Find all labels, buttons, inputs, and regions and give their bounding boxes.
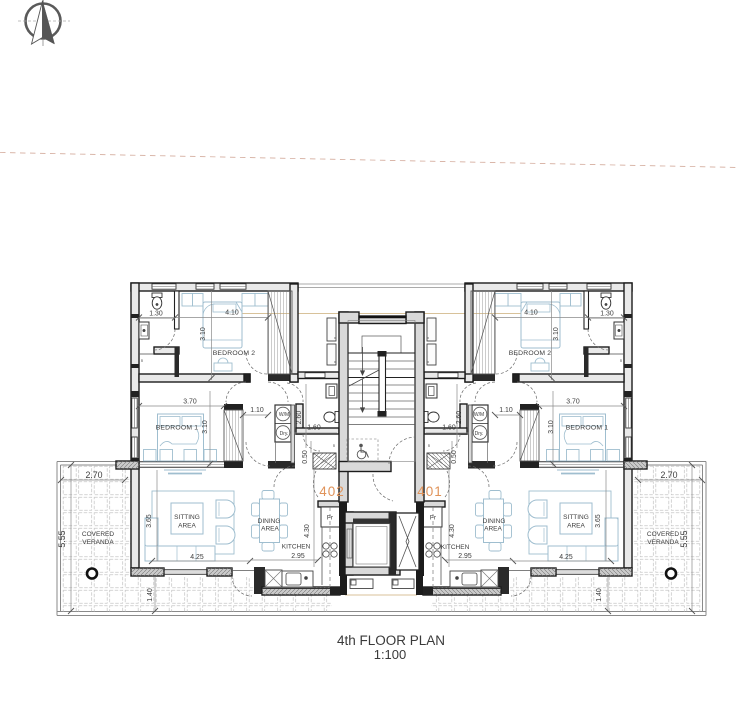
- svg-text:KITCHEN: KITCHEN: [282, 544, 311, 551]
- svg-text:BEDROOM 2: BEDROOM 2: [213, 350, 256, 357]
- svg-text:2.70: 2.70: [85, 470, 102, 480]
- svg-text:1.10: 1.10: [499, 407, 513, 414]
- svg-text:4.25: 4.25: [559, 554, 573, 561]
- svg-text:2.95: 2.95: [291, 553, 305, 560]
- svg-text:3.10: 3.10: [553, 327, 560, 341]
- svg-text:3.10: 3.10: [202, 420, 209, 434]
- svg-text:1.10: 1.10: [250, 407, 264, 414]
- svg-text:AREA: AREA: [178, 523, 196, 530]
- svg-text:KITCHEN: KITCHEN: [441, 544, 470, 551]
- svg-text:2.60: 2.60: [296, 411, 303, 425]
- svg-text:DINING: DINING: [258, 518, 281, 525]
- svg-text:3.70: 3.70: [566, 399, 580, 406]
- svg-text:4th FLOOR PLAN: 4th FLOOR PLAN: [337, 633, 445, 648]
- svg-text:COVERED: COVERED: [647, 531, 679, 538]
- svg-text:COVERED: COVERED: [82, 531, 114, 538]
- svg-text:1.60: 1.60: [307, 425, 321, 432]
- svg-text:5.55: 5.55: [57, 530, 67, 547]
- svg-text:1.40: 1.40: [596, 588, 603, 602]
- svg-text:Dry.: Dry.: [280, 431, 289, 437]
- svg-text:1.30: 1.30: [149, 311, 163, 318]
- svg-text:VERANDA: VERANDA: [82, 539, 114, 546]
- svg-text:W/M: W/M: [279, 412, 289, 418]
- svg-text:Fr: Fr: [430, 515, 437, 522]
- svg-text:1.30: 1.30: [600, 311, 614, 318]
- svg-text:BEDROOM 1: BEDROOM 1: [156, 425, 199, 432]
- svg-text:AREA: AREA: [484, 526, 502, 533]
- svg-text:2.95: 2.95: [458, 553, 472, 560]
- svg-text:2.60: 2.60: [456, 411, 463, 425]
- svg-text:1:100: 1:100: [374, 647, 407, 662]
- svg-text:Fr: Fr: [327, 515, 334, 522]
- svg-text:SITTING: SITTING: [563, 514, 589, 521]
- svg-text:W/M: W/M: [474, 412, 484, 418]
- svg-text:3.65: 3.65: [595, 514, 602, 528]
- svg-text:2.70: 2.70: [660, 470, 677, 480]
- svg-text:4.30: 4.30: [304, 524, 311, 538]
- svg-text:0.50: 0.50: [451, 450, 458, 464]
- svg-text:1.40: 1.40: [147, 588, 154, 602]
- svg-text:1.60: 1.60: [442, 425, 456, 432]
- svg-text:4.25: 4.25: [190, 554, 204, 561]
- svg-text:3.10: 3.10: [200, 327, 207, 341]
- svg-text:402: 402: [319, 484, 345, 499]
- svg-text:4.10: 4.10: [225, 310, 239, 317]
- svg-text:AREA: AREA: [261, 526, 279, 533]
- svg-text:401: 401: [417, 484, 443, 499]
- svg-text:Dry.: Dry.: [475, 431, 484, 437]
- svg-text:3.70: 3.70: [183, 399, 197, 406]
- svg-text:AREA: AREA: [567, 523, 585, 530]
- svg-text:3.65: 3.65: [146, 514, 153, 528]
- svg-text:SITTING: SITTING: [174, 514, 200, 521]
- svg-text:5.55: 5.55: [679, 530, 689, 547]
- svg-text:BEDROOM 1: BEDROOM 1: [566, 425, 609, 432]
- svg-text:0.50: 0.50: [302, 450, 309, 464]
- svg-text:4.30: 4.30: [449, 524, 456, 538]
- svg-text:3.10: 3.10: [548, 420, 555, 434]
- svg-text:VERANDA: VERANDA: [647, 539, 679, 546]
- svg-text:4.10: 4.10: [524, 310, 538, 317]
- svg-text:DINING: DINING: [483, 518, 506, 525]
- svg-text:BEDROOM 2: BEDROOM 2: [509, 350, 552, 357]
